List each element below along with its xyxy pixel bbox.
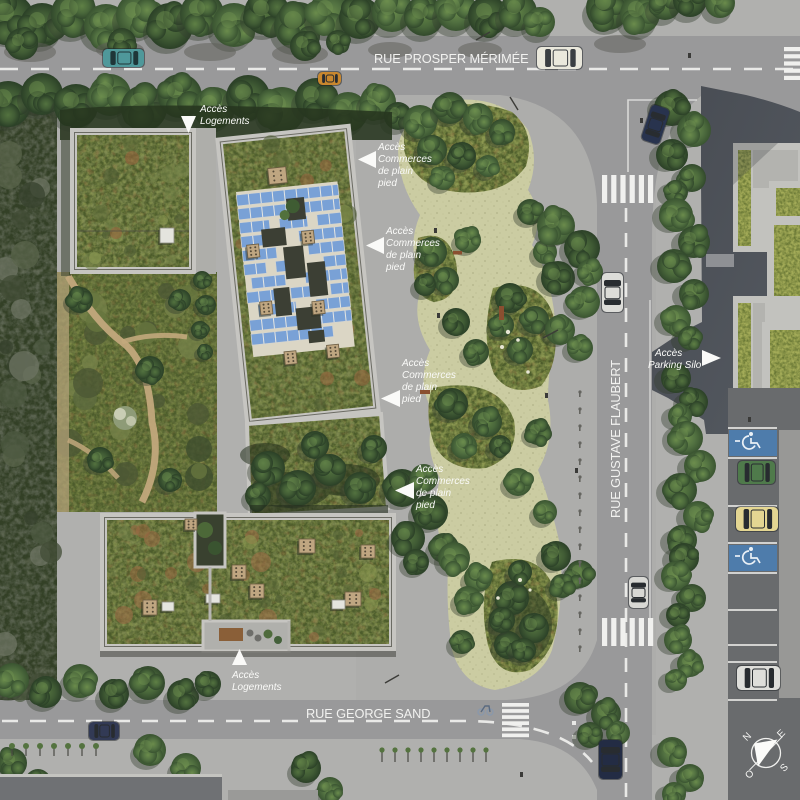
svg-text:Accès: Accès — [231, 670, 259, 681]
svg-text:de plain: de plain — [378, 166, 413, 177]
svg-text:RUE GEORGE SAND: RUE GEORGE SAND — [306, 706, 430, 721]
svg-text:RUE PROSPER MÉRIMÉE: RUE PROSPER MÉRIMÉE — [374, 51, 529, 66]
svg-text:Accès: Accès — [415, 464, 443, 475]
svg-text:pied: pied — [377, 178, 397, 189]
svg-text:Commerces: Commerces — [378, 154, 432, 165]
svg-text:Accès: Accès — [654, 348, 682, 359]
svg-text:de plain: de plain — [416, 488, 451, 499]
svg-text:pied: pied — [385, 262, 405, 273]
svg-text:Commerces: Commerces — [386, 238, 440, 249]
svg-text:Commerces: Commerces — [416, 476, 470, 487]
svg-text:de plain: de plain — [402, 382, 437, 393]
svg-text:Accès: Accès — [401, 358, 429, 369]
svg-text:Accès: Accès — [199, 104, 227, 115]
svg-text:pied: pied — [415, 500, 435, 511]
svg-text:Accès: Accès — [385, 226, 413, 237]
svg-text:Accès: Accès — [377, 142, 405, 153]
svg-text:Logements: Logements — [200, 116, 249, 127]
svg-text:pied: pied — [401, 394, 421, 405]
svg-text:Logements: Logements — [232, 682, 281, 693]
svg-text:Parking Silo: Parking Silo — [648, 360, 702, 371]
svg-text:de plain: de plain — [386, 250, 421, 261]
svg-text:Commerces: Commerces — [402, 370, 456, 381]
svg-text:RUE GUSTAVE FLAUBERT: RUE GUSTAVE FLAUBERT — [608, 360, 623, 518]
